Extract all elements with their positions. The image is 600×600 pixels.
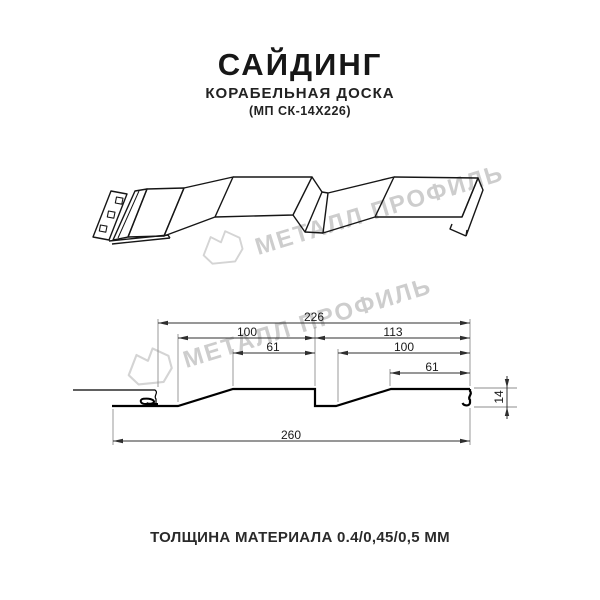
dim-label-14: 14 [492, 390, 506, 403]
thickness-note: ТОЛЩИНА МАТЕРИАЛА 0.4/0,45/0,5 ММ [0, 529, 600, 546]
dim-label-61-right: 61 [425, 360, 438, 374]
cross-section-view [73, 389, 471, 406]
technical-drawing [0, 0, 600, 600]
profile-3d-view [93, 177, 483, 244]
dimension-arrows [113, 321, 509, 443]
dim-label-226: 226 [304, 310, 324, 324]
dim-label-61-left: 61 [266, 340, 279, 354]
dim-label-113: 113 [383, 325, 402, 339]
dim-label-100-right: 100 [394, 340, 414, 354]
dim-label-100-left: 100 [237, 325, 257, 339]
product-drawing-page: САЙДИНГ КОРАБЕЛЬНАЯ ДОСКА (МП СК-14Х226)… [0, 0, 600, 600]
dimension-lines [113, 323, 507, 441]
dim-label-260: 260 [281, 428, 301, 442]
